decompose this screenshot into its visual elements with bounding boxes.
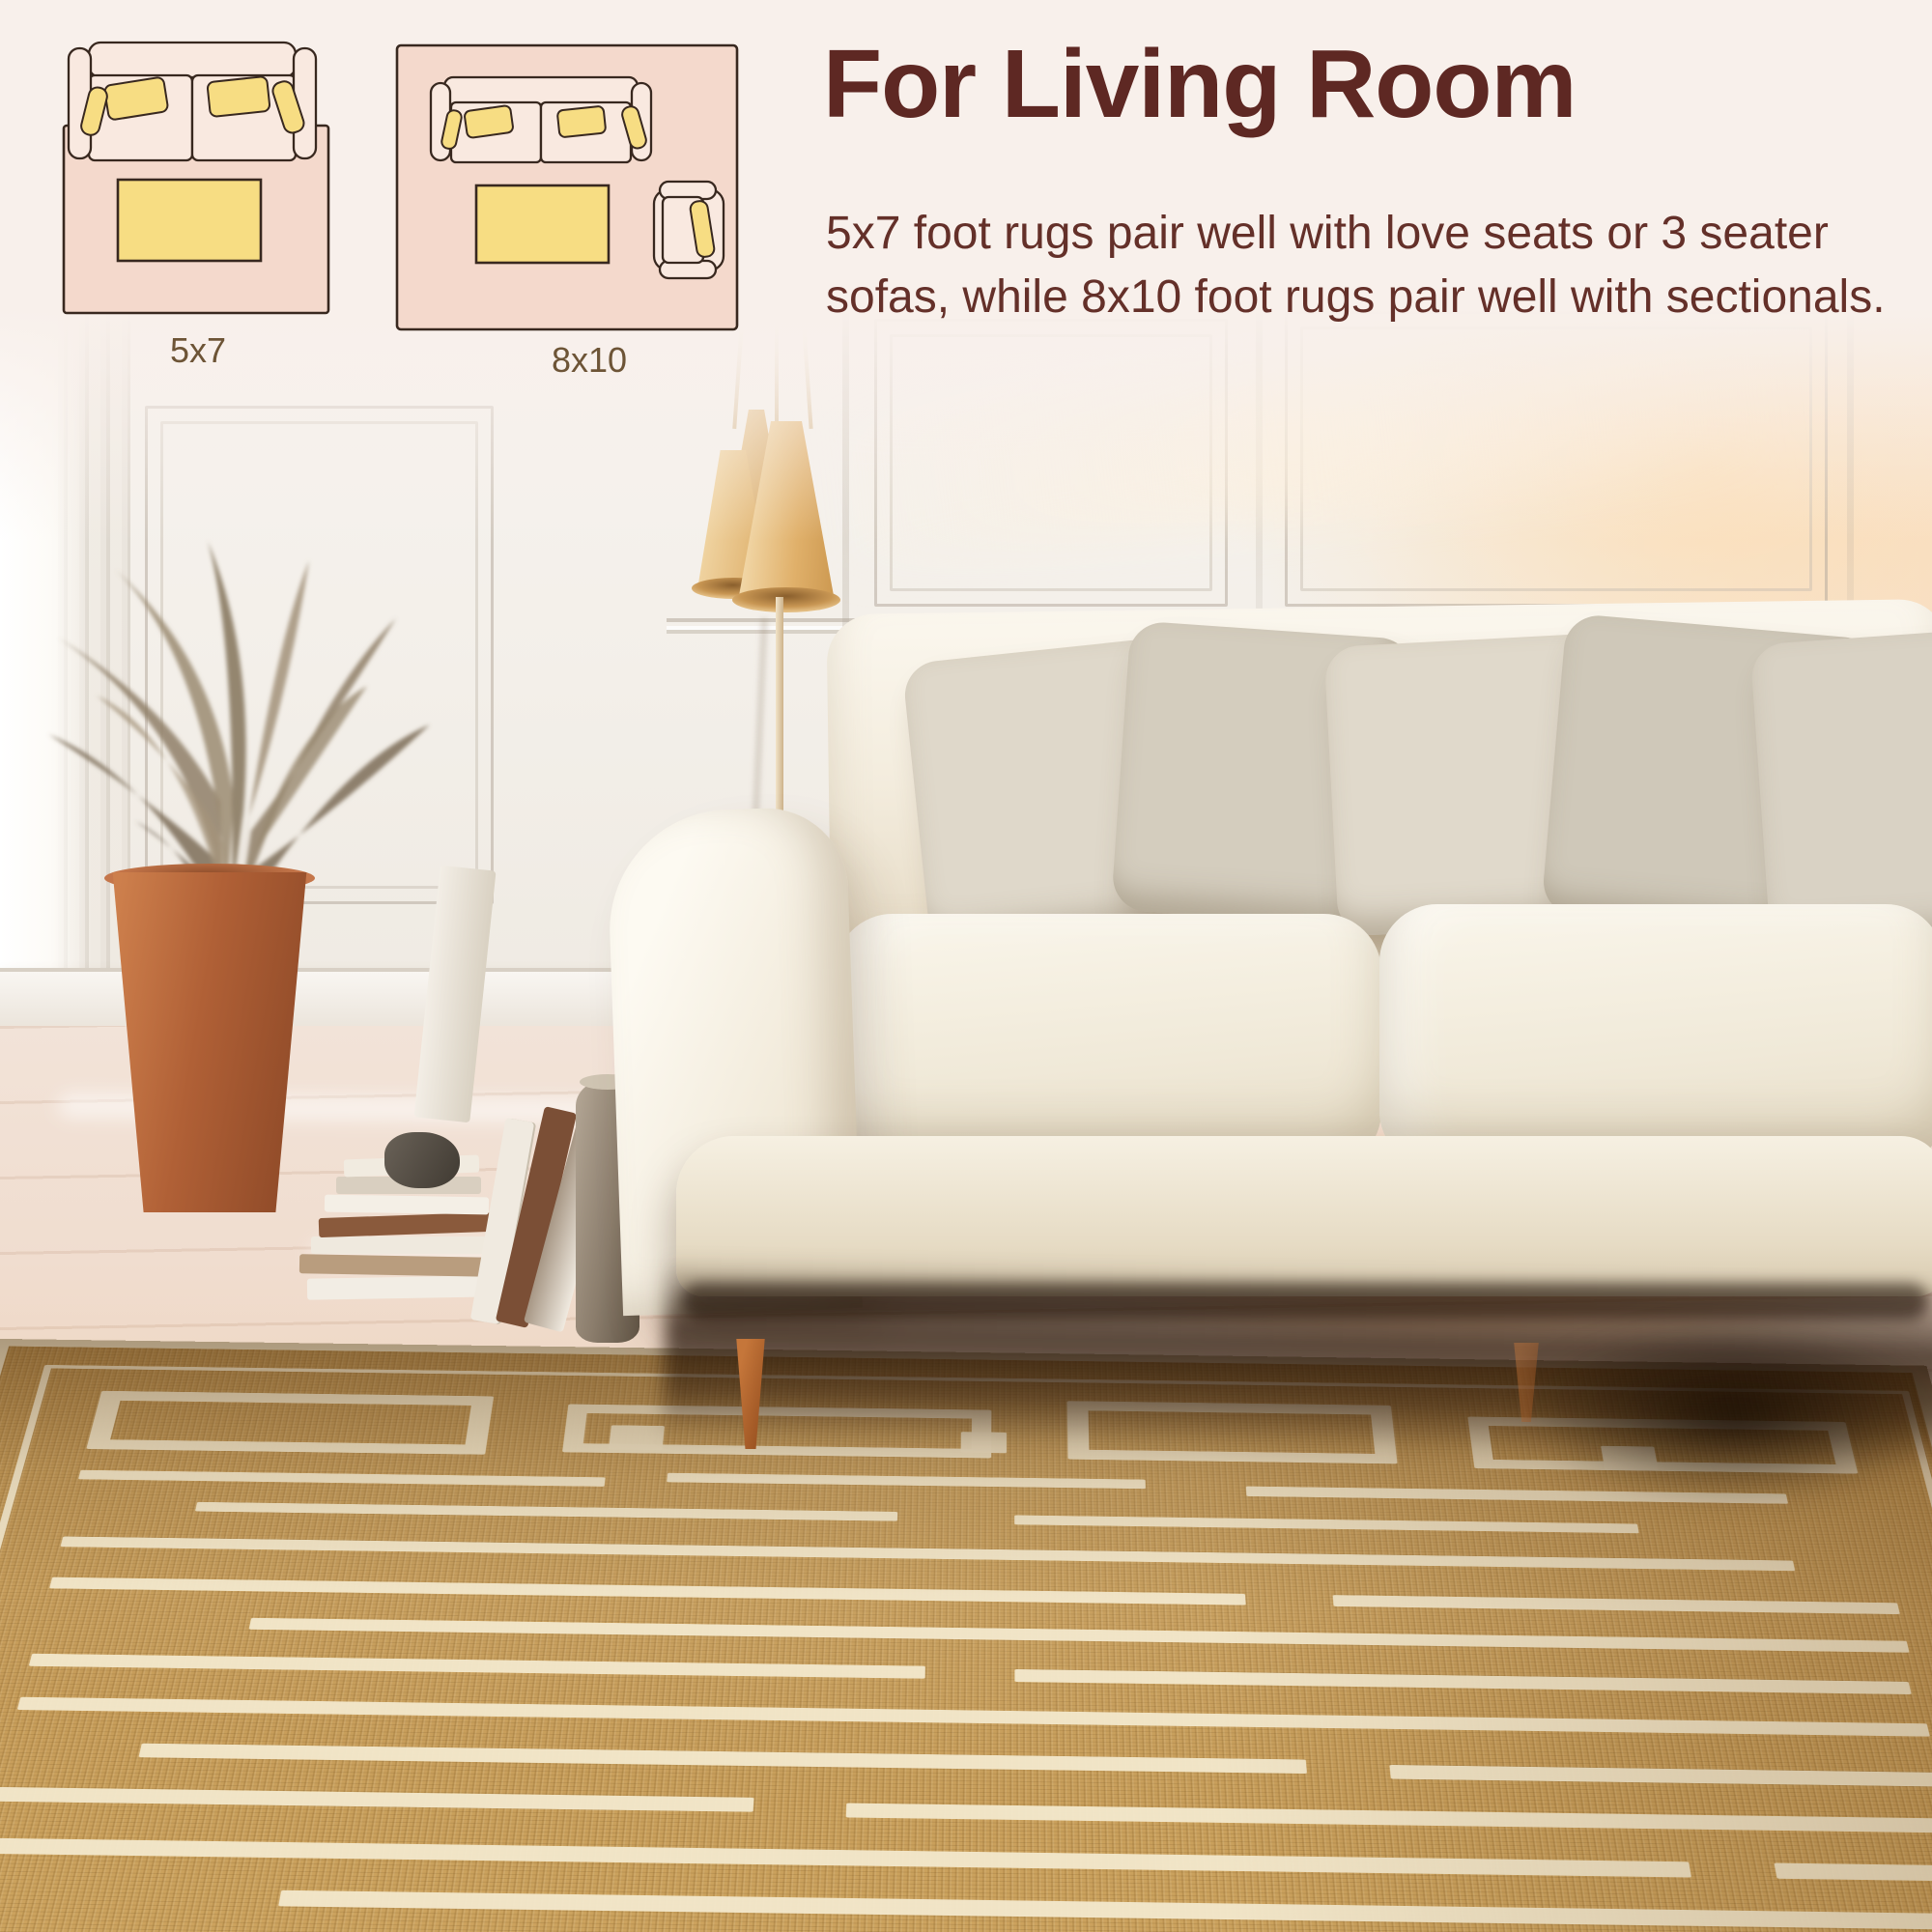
loveseat-top-view xyxy=(69,43,316,160)
rug-pattern-bar xyxy=(1389,1765,1932,1787)
rug-pattern-bar xyxy=(78,1470,606,1487)
body-text-line: sofas, while 8x10 foot rugs pair well wi… xyxy=(826,269,1886,327)
diagram-label-8x10: 8x10 xyxy=(411,340,768,381)
diagram-label-5x7: 5x7 xyxy=(58,330,338,371)
rug-pattern-bar xyxy=(1333,1595,1900,1614)
rug-pattern-bar xyxy=(17,1697,1930,1737)
rug-pattern-bar xyxy=(609,1425,665,1450)
rug-pattern-bar xyxy=(49,1577,1246,1605)
seat-cushion xyxy=(1379,904,1932,1169)
rug-pattern-frame xyxy=(86,1391,494,1455)
rug-pattern-bar xyxy=(60,1537,1795,1572)
rug-pattern-bar xyxy=(667,1473,1146,1489)
armchair-top-view xyxy=(654,182,724,278)
body-text-line: 5x7 foot rugs pair well with love seats … xyxy=(826,205,1829,263)
diagram-5x7 xyxy=(56,37,336,327)
rug-pattern-bar xyxy=(249,1618,1910,1653)
rug-pattern-bar xyxy=(278,1890,1932,1930)
rug-pattern-bar xyxy=(0,1838,1691,1878)
rug-swatch xyxy=(476,185,609,263)
rug-pattern-bar xyxy=(846,1804,1932,1833)
seat-cushion xyxy=(835,914,1381,1169)
rug-pattern-bar xyxy=(29,1654,925,1679)
rug-product-infographic: 5x7 8x10 For Living Room 5x7 foot rugs p… xyxy=(0,0,1932,1932)
rug-swatch xyxy=(118,180,261,261)
rug-pattern-bar xyxy=(138,1744,1306,1774)
page-title: For Living Room xyxy=(823,29,1924,140)
diagram-8x10 xyxy=(388,37,746,338)
rug-pattern-bar xyxy=(1014,1669,1911,1694)
throw-pillow xyxy=(1749,623,1932,952)
rug-pattern-bar xyxy=(0,1787,754,1812)
rug-pattern-bar xyxy=(195,1502,897,1521)
rug-pattern-bar xyxy=(1774,1863,1932,1882)
sofa-top-view xyxy=(431,77,651,162)
